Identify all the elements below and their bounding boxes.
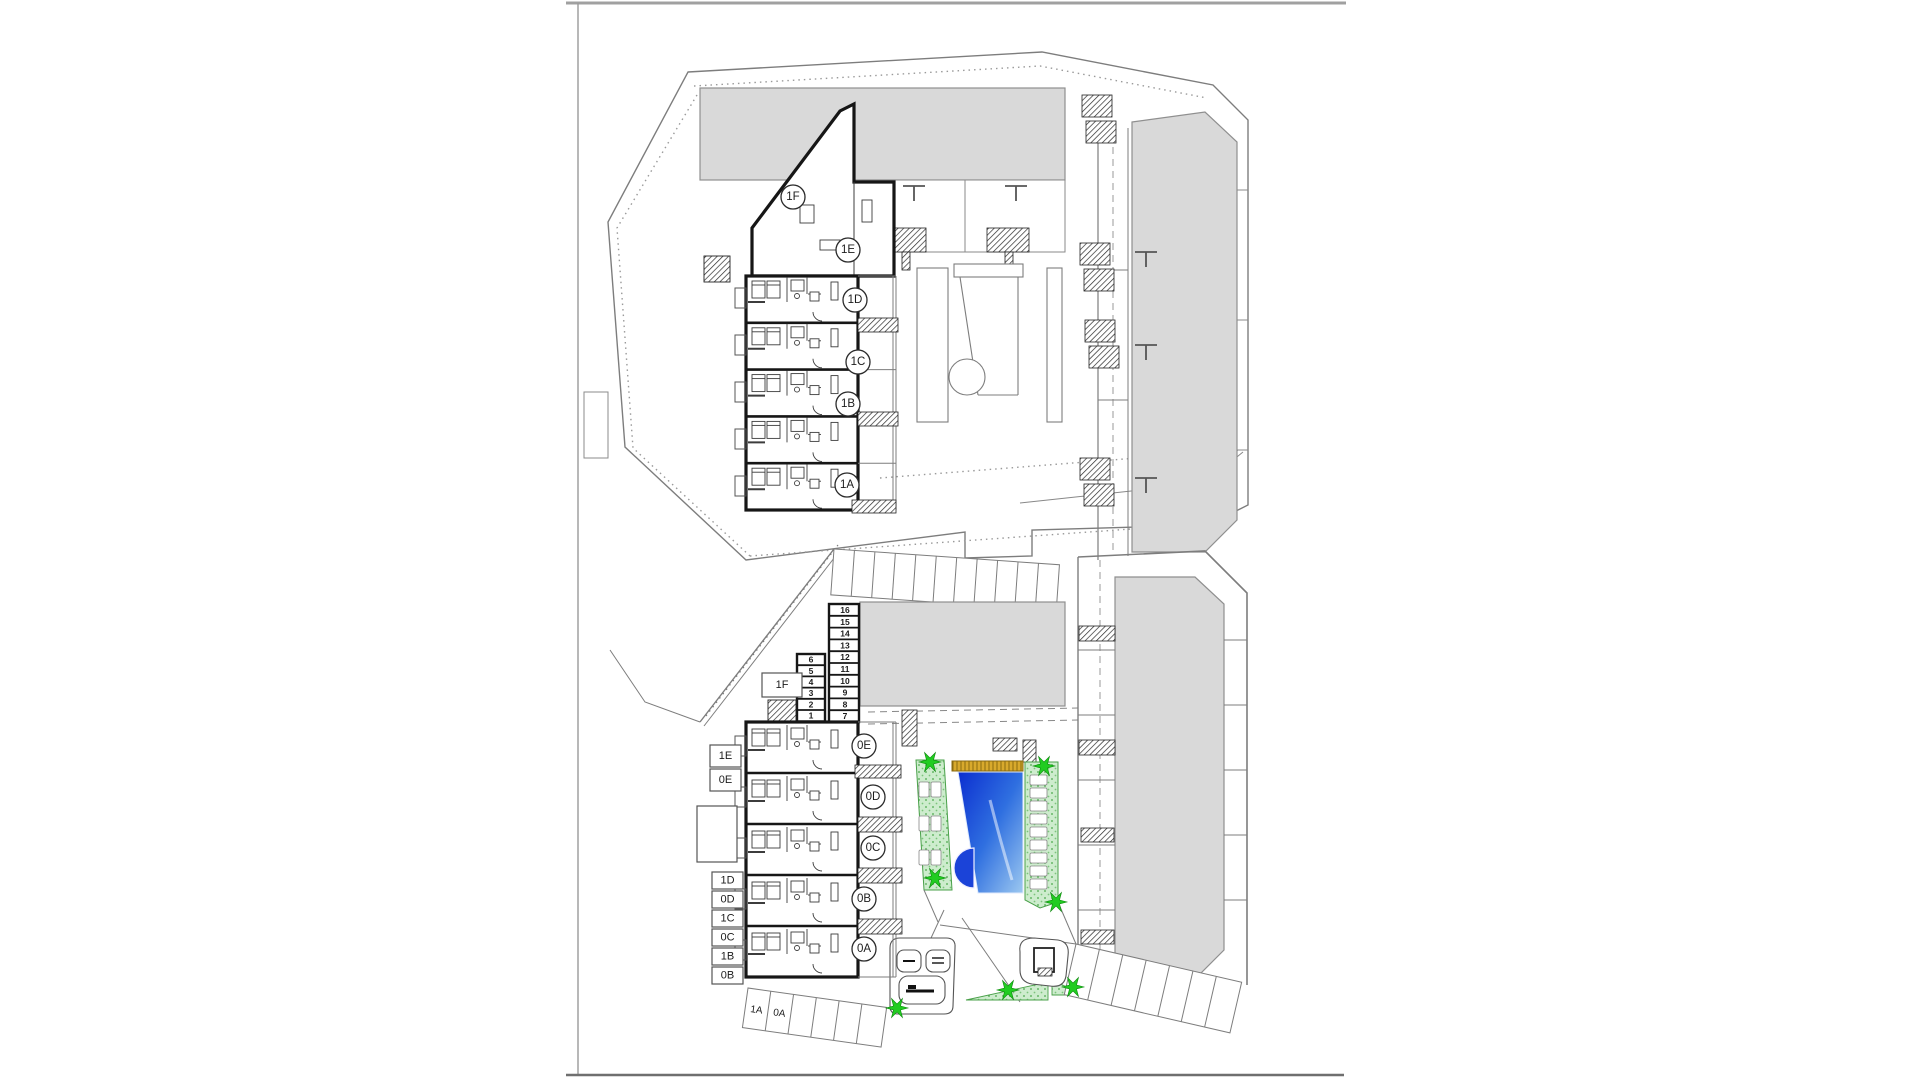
svg-text:1A: 1A [750, 1004, 764, 1017]
svg-text:1: 1 [809, 711, 814, 721]
svg-text:1B: 1B [721, 951, 734, 963]
svg-text:0B: 0B [857, 893, 871, 905]
svg-text:1E: 1E [719, 750, 732, 762]
courtyard-feature [917, 264, 1062, 422]
svg-text:0C: 0C [866, 842, 881, 854]
svg-text:0E: 0E [719, 774, 732, 786]
stair-cores-upper [1080, 95, 1119, 506]
parking-bottom-left: 1A 0A [742, 988, 886, 1047]
svg-text:1E: 1E [841, 244, 855, 256]
svg-text:7: 7 [843, 711, 848, 721]
pool-plant-room [1020, 938, 1069, 986]
unit-label-1C: 1C [846, 350, 870, 374]
svg-text:8: 8 [843, 699, 848, 709]
svg-text:15: 15 [840, 617, 850, 627]
unit-label-0B: 0B [852, 887, 876, 911]
svg-text:11: 11 [841, 664, 850, 674]
svg-text:14: 14 [840, 629, 850, 639]
unit-label-1F: 1F [781, 185, 805, 209]
ground-floor-plan: 16 15 14 13 12 11 10 9 8 7 6 5 4 3 2 1 [610, 545, 1247, 1047]
svg-text:10: 10 [840, 676, 850, 686]
floorplan-drawing: 1F 1E 1D 1C 1B 1A [0, 0, 1920, 1080]
gold-strip-hatch [952, 761, 1023, 771]
left-boundary-box [584, 392, 608, 458]
pool-step [954, 848, 974, 888]
unit-label-1A: 1A [835, 473, 859, 497]
unit-label-0D: 0D [861, 785, 885, 809]
table-leg [908, 985, 916, 989]
svg-text:1C: 1C [851, 356, 866, 368]
svg-text:0A: 0A [857, 943, 871, 955]
unit-label-0A: 0A [852, 937, 876, 961]
svg-text:0B: 0B [721, 970, 734, 982]
svg-text:3: 3 [809, 688, 814, 698]
unit-label-0E: 0E [852, 734, 876, 758]
svg-text:12: 12 [840, 652, 850, 662]
plan-sheet: 1F 1E 1D 1C 1B 1A [0, 0, 1920, 1080]
storage-block: 16 15 14 13 12 11 10 9 8 7 6 5 4 3 2 1 [768, 604, 859, 722]
storage-numbers-left: 6 5 4 3 2 1 [809, 655, 814, 721]
central-building-gray [860, 602, 1065, 706]
svg-text:16: 16 [840, 605, 850, 615]
svg-text:6: 6 [809, 655, 814, 665]
svg-text:4: 4 [809, 677, 814, 687]
right-building-upper [1098, 112, 1248, 560]
svg-text:1F: 1F [776, 679, 789, 691]
unit-label-1E: 1E [836, 238, 860, 262]
svg-text:13: 13 [840, 640, 850, 650]
svg-text:5: 5 [809, 666, 814, 676]
walkway-lines [868, 708, 1078, 762]
roof-terrace-gray-upper [700, 88, 1065, 180]
svg-text:1D: 1D [720, 875, 734, 887]
right-building-ground [1078, 551, 1247, 995]
svg-text:0E: 0E [857, 740, 871, 752]
unit-label-1D: 1D [843, 288, 867, 312]
svg-text:9: 9 [843, 688, 848, 698]
svg-text:1B: 1B [841, 398, 855, 410]
svg-text:0C: 0C [720, 932, 734, 944]
sun-loungers-right [1030, 775, 1047, 889]
upper-floor-plan: 1F 1E 1D 1C 1B 1A [584, 52, 1248, 560]
unit-label-1B: 1B [836, 392, 860, 416]
svg-text:1C: 1C [720, 913, 734, 925]
svg-text:2: 2 [809, 699, 814, 709]
svg-text:1D: 1D [848, 294, 863, 306]
svg-text:1A: 1A [840, 479, 854, 491]
svg-text:1F: 1F [786, 191, 799, 203]
svg-text:0A: 0A [772, 1007, 786, 1020]
svg-text:0D: 0D [866, 791, 881, 803]
svg-text:0D: 0D [720, 894, 734, 906]
unit-label-0C: 0C [861, 836, 885, 860]
